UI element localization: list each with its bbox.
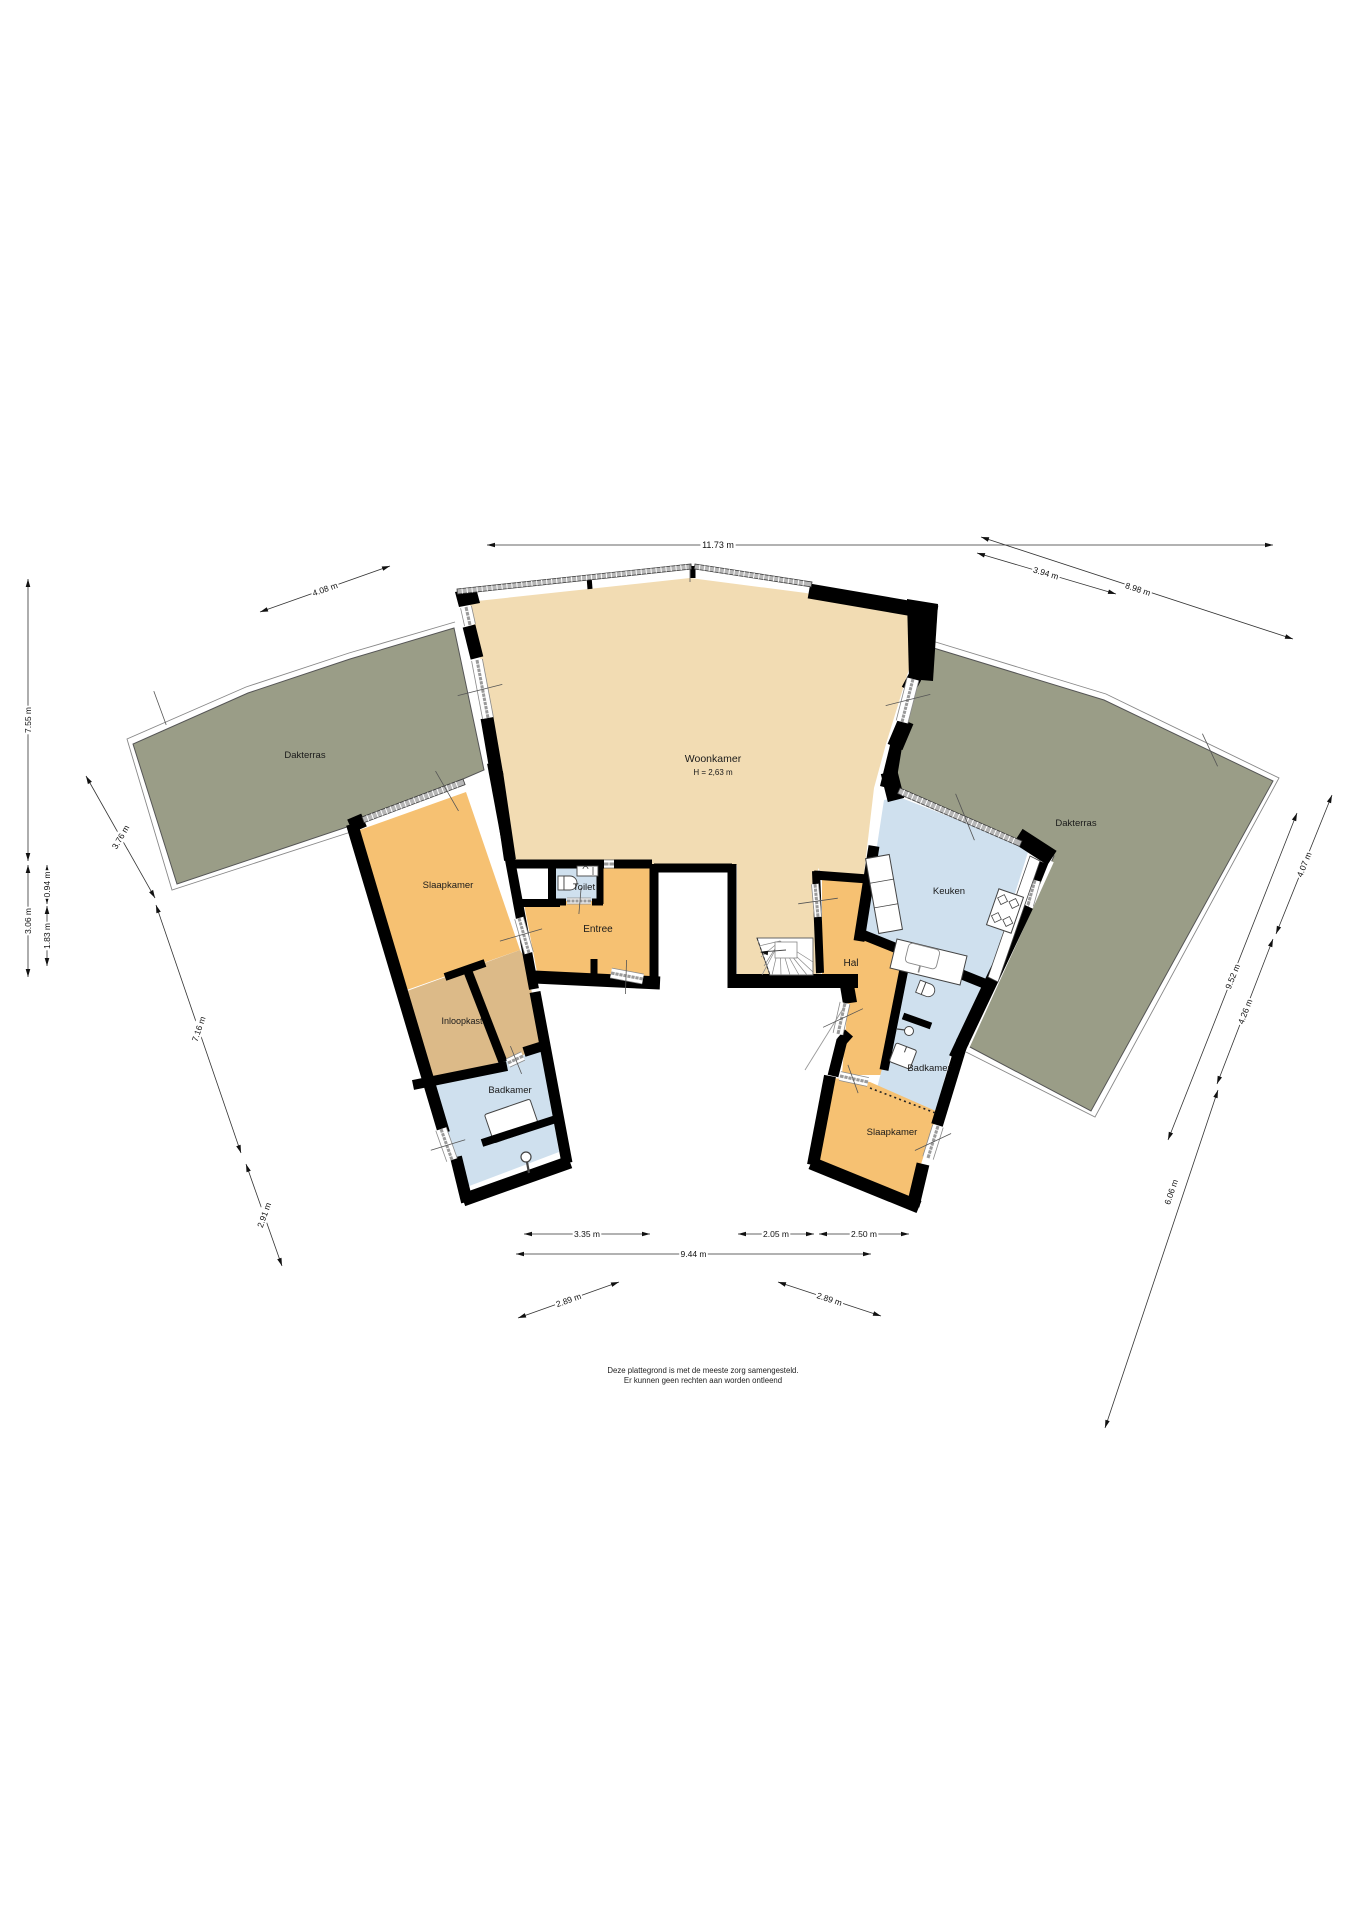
svg-text:Toilet: Toilet [573,882,596,893]
svg-text:Inloopkast: Inloopkast [441,1016,483,1026]
svg-text:7.55 m: 7.55 m [23,707,33,733]
svg-text:1.83 m: 1.83 m [42,923,52,949]
svg-text:0.94 m: 0.94 m [42,872,52,898]
svg-text:H = 2,63 m: H = 2,63 m [693,768,733,777]
svg-text:2.05 m: 2.05 m [763,1229,789,1239]
svg-text:Slaapkamer: Slaapkamer [423,880,474,891]
svg-text:2.50 m: 2.50 m [851,1229,877,1239]
svg-text:Woonkamer: Woonkamer [685,753,742,765]
svg-text:Er kunnen geen rechten aan wor: Er kunnen geen rechten aan worden ontlee… [624,1376,782,1385]
svg-text:Keuken: Keuken [933,886,965,897]
svg-text:Dakterras: Dakterras [1055,818,1096,829]
svg-text:11.73 m: 11.73 m [702,540,734,550]
svg-text:Dakterras: Dakterras [284,750,325,761]
svg-text:Entree: Entree [583,924,613,935]
svg-text:3.35 m: 3.35 m [574,1229,600,1239]
svg-text:Deze plattegrond is met de mee: Deze plattegrond is met de meeste zorg s… [607,1366,798,1375]
svg-text:Badkamer: Badkamer [488,1085,531,1096]
svg-text:9.44 m: 9.44 m [681,1249,707,1259]
svg-text:Slaapkamer: Slaapkamer [867,1127,918,1138]
svg-text:3.06 m: 3.06 m [23,908,33,934]
svg-text:Badkamer: Badkamer [907,1063,950,1074]
svg-text:Hal: Hal [843,958,858,969]
